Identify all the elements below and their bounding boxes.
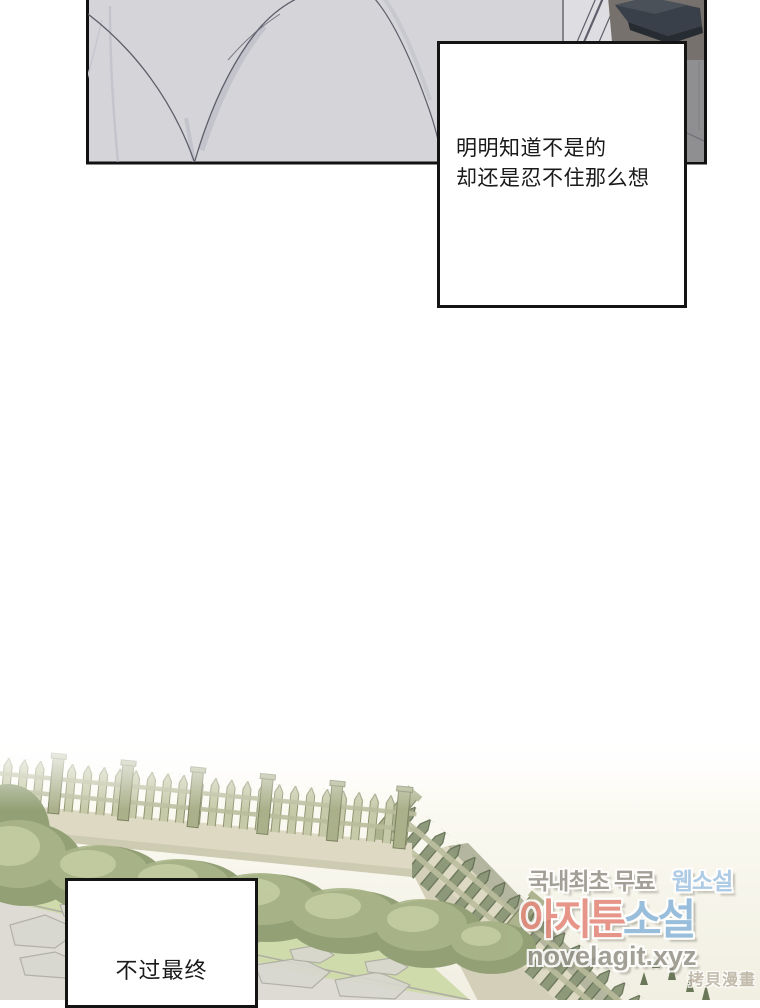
caption-top-line2: 却还是忍不住那么想 [456, 164, 674, 194]
comic-page: { "captions": { "top": { "line1": "明明知道不… [0, 0, 760, 1000]
caption-bottom-line1: 不过最终 [68, 953, 255, 985]
caption-box-bottom: 不过最终 [65, 878, 258, 1008]
scene-top-fade [0, 735, 760, 810]
caption-box-top: 明明知道不是的 却还是忍不住那么想 [437, 41, 687, 308]
caption-top-line1: 明明知道不是的 [456, 134, 674, 164]
